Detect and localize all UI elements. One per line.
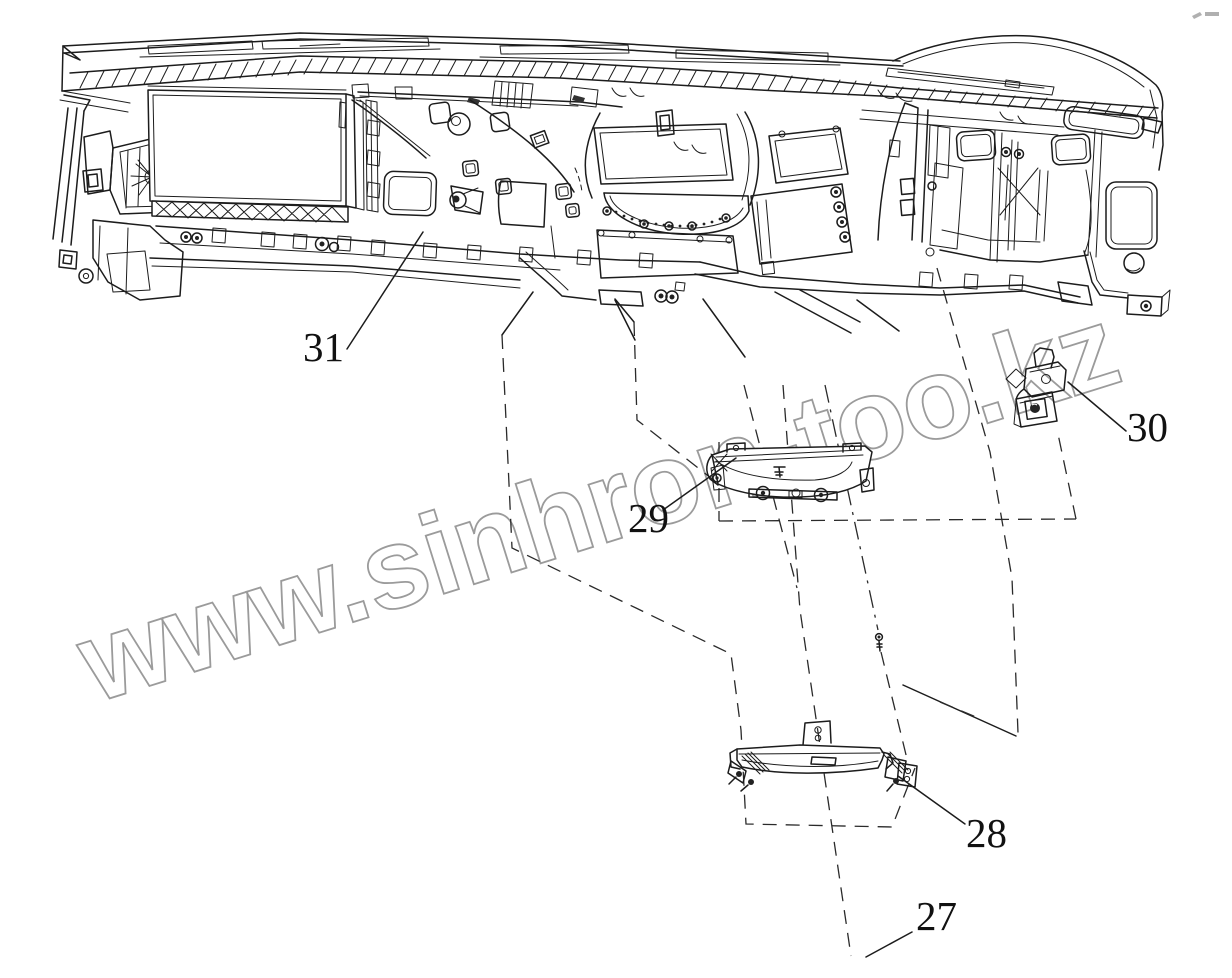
svg-text:30: 30 <box>1127 404 1168 450</box>
svg-text:www.sinhron-too.kz: www.sinhron-too.kz <box>63 282 1133 727</box>
svg-text:27: 27 <box>916 893 957 939</box>
svg-text:29: 29 <box>628 495 669 541</box>
svg-text:28: 28 <box>966 810 1007 856</box>
svg-text:31: 31 <box>303 324 344 370</box>
